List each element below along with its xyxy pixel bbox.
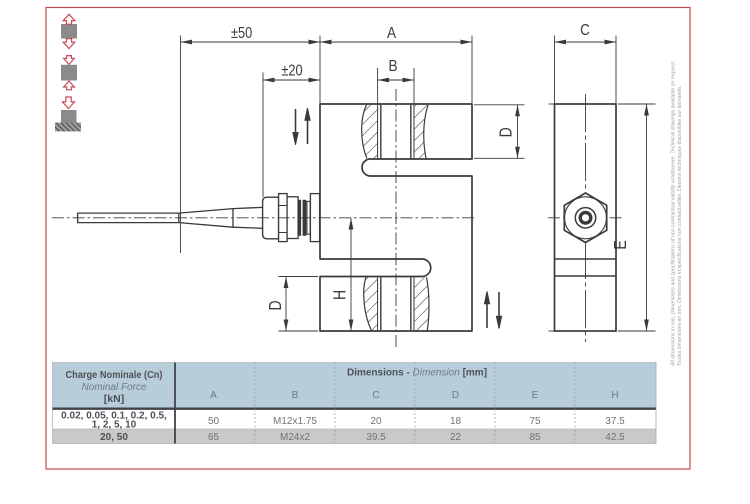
- svg-text:D: D: [497, 127, 516, 137]
- svg-text:±20: ±20: [281, 62, 302, 80]
- svg-text:D: D: [267, 300, 286, 310]
- svg-text:Toutes dimensions en mm. Dimen: Toutes dimensions en mm. Dimensions et s…: [677, 85, 683, 366]
- svg-text:D: D: [452, 390, 459, 401]
- svg-text:E: E: [532, 390, 539, 401]
- svg-text:Nominal Force: Nominal Force: [81, 382, 146, 393]
- svg-text:E: E: [612, 240, 631, 249]
- svg-text:C: C: [372, 390, 379, 401]
- svg-text:42.5: 42.5: [605, 432, 625, 443]
- svg-text:18: 18: [450, 416, 462, 427]
- svg-text:M12x1.75: M12x1.75: [273, 416, 317, 427]
- svg-text:20, 50: 20, 50: [100, 432, 128, 443]
- svg-text:37.5: 37.5: [605, 416, 625, 427]
- svg-text:B: B: [388, 58, 397, 75]
- svg-text:C: C: [580, 22, 590, 39]
- svg-text:A: A: [210, 390, 217, 401]
- svg-text:±50: ±50: [231, 25, 252, 43]
- svg-text:85: 85: [529, 432, 541, 443]
- svg-text:50: 50: [208, 416, 220, 427]
- svg-text:65: 65: [208, 432, 220, 443]
- svg-text:22: 22: [450, 432, 462, 443]
- svg-text:All dimensions in mm. Dimensio: All dimensions in mm. Dimensions and spe…: [671, 60, 677, 367]
- svg-text:[kN]: [kN]: [104, 393, 124, 405]
- svg-text:39.5: 39.5: [366, 432, 386, 443]
- svg-text:H: H: [331, 290, 350, 300]
- svg-text:20: 20: [370, 416, 382, 427]
- svg-text:B: B: [292, 390, 299, 401]
- svg-text:M24x2: M24x2: [280, 432, 310, 443]
- svg-text:75: 75: [529, 416, 541, 427]
- svg-text:Charge Nominale (Cn): Charge Nominale (Cn): [66, 369, 163, 381]
- svg-text:H: H: [611, 390, 618, 401]
- svg-text:1, 2, 5, 10: 1, 2, 5, 10: [92, 419, 137, 430]
- svg-text:Dimensions - Dimension [mm]: Dimensions - Dimension [mm]: [347, 368, 487, 379]
- svg-text:A: A: [387, 25, 396, 42]
